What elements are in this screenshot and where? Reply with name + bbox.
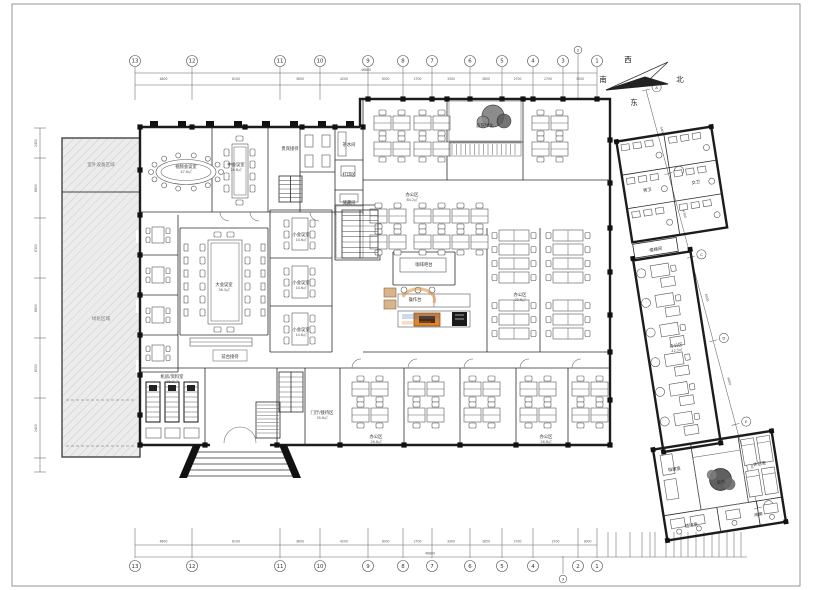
grid-bubble-label: 4	[531, 564, 535, 570]
grid-bubble-label: 2	[576, 564, 579, 570]
dim-value: 2850	[482, 77, 490, 81]
wc-fixture	[680, 134, 689, 141]
wc-fixture	[633, 142, 642, 149]
dim-value: 4800	[160, 77, 168, 81]
room-label: 室外设备区域	[87, 161, 115, 168]
chair	[469, 423, 476, 428]
chair	[585, 331, 590, 337]
dim-value: 3600	[296, 77, 304, 81]
column	[274, 442, 279, 447]
chair	[544, 397, 551, 402]
chair	[224, 185, 229, 192]
desk-cluster	[546, 230, 590, 283]
chair	[596, 423, 603, 428]
dim-value: 8100	[232, 77, 240, 81]
chair	[166, 237, 170, 243]
line-shape	[664, 134, 680, 235]
dim-value: 3000	[382, 77, 390, 81]
chair	[200, 296, 205, 303]
column-cap	[234, 121, 242, 127]
chair	[357, 376, 364, 381]
chair	[531, 317, 536, 323]
chair	[310, 315, 315, 322]
table	[152, 307, 164, 323]
grid-bubble-label: 5	[500, 59, 503, 65]
watermark-text-band-1	[402, 314, 439, 319]
chair	[394, 229, 401, 234]
pantry-floor	[336, 206, 363, 258]
grid-bubble-label: 12	[189, 59, 196, 65]
column	[607, 397, 612, 402]
grid-bubble-label: 3	[561, 59, 564, 65]
dim-value: 2700	[544, 77, 552, 81]
column	[202, 442, 207, 447]
desk-cluster	[414, 203, 450, 255]
chair	[375, 224, 382, 229]
chair	[670, 265, 676, 272]
floor-plan-page: 1312111098765432148008100360042003000270…	[0, 0, 833, 590]
chair	[476, 203, 483, 208]
chair	[245, 244, 250, 251]
chair	[432, 376, 439, 381]
desk	[684, 424, 699, 435]
column	[560, 96, 565, 101]
column	[137, 252, 142, 257]
round-table	[655, 387, 665, 397]
table	[152, 267, 164, 283]
chair	[357, 397, 364, 402]
chair	[152, 162, 157, 167]
chair	[215, 177, 220, 182]
chair	[419, 250, 426, 255]
chair	[245, 296, 250, 303]
room-area-label: 56.3㎡	[219, 287, 231, 292]
annex-outdoor-zones	[62, 138, 141, 457]
wc-fixture	[645, 140, 654, 147]
column	[189, 124, 194, 129]
seat	[305, 135, 313, 147]
chair	[488, 397, 495, 402]
column	[137, 442, 142, 447]
chair	[419, 229, 426, 234]
chair	[537, 110, 544, 115]
chair	[284, 337, 289, 344]
chair	[146, 355, 150, 361]
basin	[656, 152, 663, 159]
column	[687, 247, 692, 252]
room-label: 庭院绿化	[476, 122, 494, 129]
desk-cluster	[374, 110, 410, 162]
dim-value: 3300	[447, 540, 455, 544]
chair	[284, 315, 289, 322]
chair	[438, 136, 445, 141]
chair	[176, 186, 181, 191]
column	[718, 440, 723, 445]
desk	[650, 263, 670, 278]
desk	[674, 411, 694, 426]
grid-bubble-label: 1	[595, 564, 598, 570]
chair	[191, 186, 196, 191]
grid-bubble-label: 13	[132, 59, 139, 65]
chair	[585, 303, 590, 309]
chair	[250, 161, 255, 168]
chair	[245, 309, 250, 316]
chair	[438, 131, 445, 136]
column	[332, 124, 337, 129]
grid-bubble-label: 10	[317, 564, 324, 570]
column	[137, 292, 142, 297]
column	[607, 269, 612, 274]
chair	[284, 242, 289, 249]
grid-bubble-label: 6	[468, 59, 472, 65]
chair	[469, 397, 476, 402]
room-area-label: 21.3㎡	[167, 379, 179, 384]
wc-fixture	[697, 166, 706, 173]
chair	[379, 136, 386, 141]
watermark-text-band-2	[402, 321, 431, 325]
column	[607, 312, 612, 317]
desk-cluster	[452, 203, 488, 255]
chair	[531, 331, 536, 337]
room-label: 女卫	[691, 178, 701, 186]
chair	[556, 110, 563, 115]
column	[429, 96, 434, 101]
dim-value: 2400	[34, 424, 38, 432]
basin	[708, 178, 715, 185]
chair	[531, 247, 536, 253]
column-cap	[178, 121, 186, 127]
desk-cluster	[520, 376, 556, 428]
desk-cluster	[464, 376, 500, 428]
column	[783, 519, 788, 524]
column-cap	[318, 121, 326, 127]
dim-total: 46800	[361, 68, 371, 72]
column	[650, 447, 655, 452]
grid-bubble-label: 9	[366, 564, 370, 570]
chair	[413, 402, 420, 407]
room-label: 库房	[754, 510, 764, 518]
round-table	[641, 298, 651, 308]
chair	[261, 296, 265, 303]
chair	[214, 232, 221, 237]
chair	[438, 229, 445, 234]
chair	[585, 261, 590, 267]
column	[137, 124, 142, 129]
chair	[184, 244, 188, 251]
chair	[376, 376, 383, 381]
chair	[261, 309, 265, 316]
floor-plan-svg: 1312111098765432148008100360042003000270…	[0, 0, 833, 590]
chair	[492, 275, 497, 281]
chair	[398, 157, 405, 162]
furniture-layer	[146, 110, 608, 438]
chair	[214, 327, 221, 332]
chair	[577, 376, 584, 381]
chair	[310, 290, 315, 297]
seat	[322, 155, 330, 167]
column-cap	[346, 121, 354, 127]
column	[299, 124, 304, 129]
server-rack	[165, 382, 180, 438]
round-table	[636, 268, 646, 278]
chair	[544, 423, 551, 428]
chair	[176, 153, 181, 158]
round-table	[660, 416, 670, 426]
compass-north-label: 北	[676, 75, 684, 84]
chair	[457, 250, 464, 255]
wc-fixture	[632, 211, 641, 218]
north-compass: 西 南 北 东	[599, 55, 684, 107]
column	[400, 96, 405, 101]
chair	[525, 397, 532, 402]
cabinet	[384, 300, 396, 309]
door-swing	[408, 359, 417, 368]
column	[614, 139, 619, 144]
desk-cluster	[492, 300, 536, 339]
desk	[669, 382, 689, 397]
chair	[146, 308, 150, 314]
door-swing	[464, 359, 473, 368]
chair	[492, 303, 497, 309]
chair	[146, 228, 150, 234]
chair	[227, 327, 234, 332]
cabinet	[664, 478, 679, 500]
chair	[457, 203, 464, 208]
chair	[146, 268, 150, 274]
annex-zone	[62, 138, 140, 457]
room-label: 贵宾接待	[281, 145, 299, 152]
wc-fixture	[703, 200, 712, 207]
room-area-label: 14.6㎡	[296, 285, 308, 290]
chair	[375, 203, 382, 208]
chair	[215, 162, 220, 167]
room-label: 绿化区域	[92, 315, 111, 322]
chair	[357, 402, 364, 407]
column-cap	[262, 121, 270, 127]
seat	[322, 135, 330, 147]
column	[607, 137, 612, 142]
chair	[250, 173, 255, 180]
column	[137, 332, 142, 337]
column	[457, 442, 462, 447]
wc-fixture	[621, 144, 630, 151]
room-label: 男卫	[643, 187, 653, 194]
wc-fixture	[674, 170, 683, 177]
chair	[732, 520, 738, 526]
room-area-label: 26.8㎡	[541, 439, 553, 444]
chair	[162, 156, 167, 161]
chair	[476, 229, 483, 234]
chair	[432, 423, 439, 428]
dim-value: 3600	[296, 540, 304, 544]
louver-row	[449, 143, 521, 156]
room-area-label: 26.8㎡	[371, 439, 383, 444]
room-area-label: 14.6㎡	[296, 332, 308, 337]
chair	[184, 270, 188, 277]
grid-bubble-label: 11	[277, 59, 284, 65]
seat	[305, 155, 313, 167]
chair	[488, 402, 495, 407]
column	[360, 124, 365, 129]
grid-bubble-label: 8	[401, 564, 405, 570]
room-label: 操作台	[409, 296, 422, 303]
stairs	[279, 176, 302, 202]
dim-value: 2700	[552, 540, 560, 544]
dim-value: 3000	[382, 540, 390, 544]
chair	[200, 257, 205, 264]
dim-value: 6600	[726, 377, 732, 386]
chair	[544, 376, 551, 381]
column	[365, 96, 370, 101]
desk-cluster	[492, 230, 536, 283]
door-swing	[224, 427, 256, 443]
chair	[376, 397, 383, 402]
chair	[476, 250, 483, 255]
grid-bubble-label: 7	[430, 564, 433, 570]
column	[769, 428, 774, 433]
column	[708, 124, 713, 129]
chair	[476, 224, 483, 229]
chair	[419, 136, 426, 141]
chair	[184, 309, 188, 316]
chair	[694, 413, 700, 420]
wc-fixture	[638, 175, 647, 182]
chair	[205, 183, 210, 188]
chair	[596, 402, 603, 407]
table	[152, 345, 164, 361]
chair	[284, 279, 289, 286]
column	[665, 538, 670, 543]
chair	[379, 157, 386, 162]
chair	[432, 397, 439, 402]
dim-value: 2850	[482, 540, 490, 544]
chair	[546, 247, 551, 253]
chair	[146, 277, 150, 283]
desk	[670, 518, 685, 529]
chair	[546, 233, 551, 239]
server-rack	[146, 382, 161, 438]
dim-value: 6000	[704, 293, 710, 302]
chair	[166, 317, 170, 323]
grid-bubble-label: 5	[500, 564, 503, 570]
wc-fixture	[668, 136, 677, 143]
grid-bubble-label: 8	[401, 59, 405, 65]
wc-fixture	[626, 177, 635, 184]
desk	[660, 276, 675, 287]
column	[137, 212, 142, 217]
round-table	[646, 327, 656, 337]
basin	[703, 144, 710, 151]
room-label: 打印区	[343, 171, 357, 178]
chair	[166, 268, 170, 274]
chair	[379, 110, 386, 115]
chair	[525, 423, 532, 428]
chair	[546, 331, 551, 337]
grid-bubble-label: 13	[132, 564, 139, 570]
column	[630, 256, 635, 261]
server-rack	[184, 382, 199, 438]
chair	[438, 157, 445, 162]
column	[337, 442, 342, 447]
dim-value: 2700	[414, 77, 422, 81]
chair	[438, 110, 445, 115]
chair	[224, 149, 229, 156]
column-cap	[150, 121, 158, 127]
chair	[546, 261, 551, 267]
chair	[310, 337, 315, 344]
chair	[413, 397, 420, 402]
room-area-label: 84.2㎡	[407, 197, 419, 202]
room-label: 储藏间	[343, 199, 356, 206]
chair	[357, 423, 364, 428]
bed	[756, 435, 773, 463]
desk	[674, 365, 689, 376]
desk-cluster	[572, 376, 608, 428]
chair	[310, 242, 315, 249]
chair	[261, 257, 265, 264]
chair	[544, 402, 551, 407]
dim-value: 2700	[514, 77, 522, 81]
chair	[310, 268, 315, 275]
chair	[245, 270, 250, 277]
room-label: 前台接待	[221, 353, 239, 360]
chair	[556, 131, 563, 136]
grid-bubble-label: 9	[366, 59, 370, 65]
grid-bubble-label: 10	[317, 59, 324, 65]
chair	[284, 231, 289, 238]
wc-fixture	[679, 203, 688, 210]
desk	[726, 509, 741, 520]
chair	[457, 229, 464, 234]
chair	[531, 275, 536, 281]
chair	[191, 153, 196, 158]
desk-cluster	[408, 376, 444, 428]
column	[607, 349, 612, 354]
rect-shape	[187, 385, 195, 391]
column	[661, 449, 666, 454]
compass-west-label: 西	[624, 55, 632, 64]
chair	[413, 376, 420, 381]
dim-value: 6000	[34, 364, 38, 372]
chair	[146, 346, 150, 352]
chair	[166, 228, 170, 234]
chair	[438, 224, 445, 229]
bed	[741, 438, 758, 466]
chair	[531, 233, 536, 239]
chair	[689, 383, 695, 390]
louver-cabinet	[256, 402, 280, 438]
chair	[236, 136, 243, 141]
chair	[200, 244, 205, 251]
door-swing	[352, 359, 361, 368]
chair	[537, 136, 544, 141]
chair	[556, 136, 563, 141]
chair	[531, 261, 536, 267]
chair	[488, 376, 495, 381]
wc-fixture	[643, 209, 652, 216]
desk-cluster	[352, 376, 388, 428]
chair	[492, 261, 497, 267]
room-area-label: 35.6㎡	[317, 415, 329, 420]
bed	[746, 469, 763, 497]
wc-fixture	[650, 173, 659, 180]
dim-value: 6300	[681, 210, 687, 219]
chair	[310, 279, 315, 286]
chair	[585, 275, 590, 281]
rotated-right-wing: 男卫女卫楼梯间办公区42.3㎡档案室庭院休息室值班室库房	[602, 122, 789, 543]
chair	[685, 354, 691, 361]
chair	[379, 131, 386, 136]
